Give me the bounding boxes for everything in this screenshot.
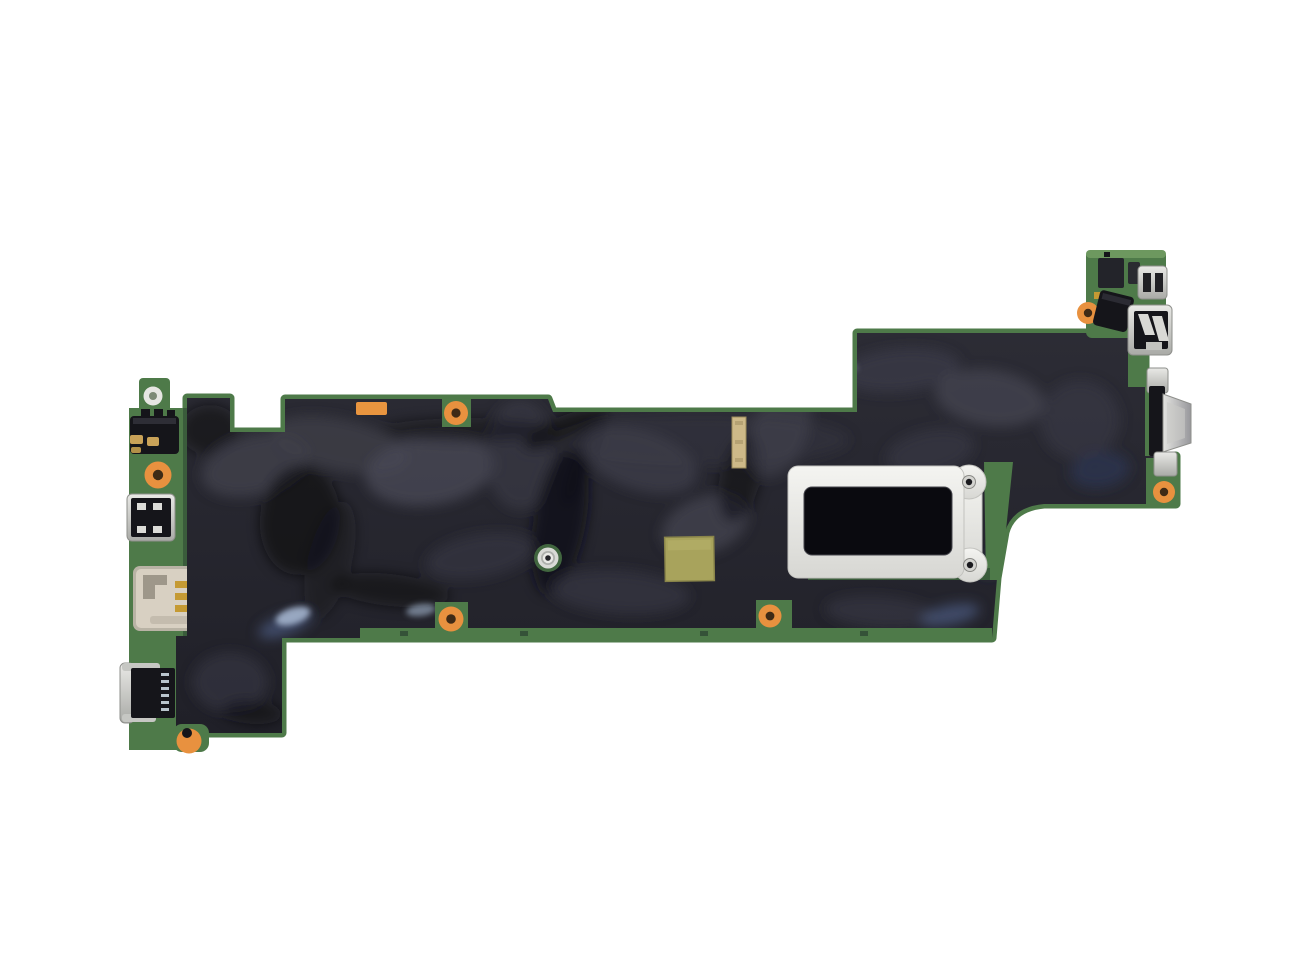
motherboard-photo xyxy=(0,0,1297,960)
dock-connector xyxy=(120,663,175,723)
mount-hole-orange-bottom-2 xyxy=(759,605,782,628)
gold-strip xyxy=(732,417,746,468)
smd-components xyxy=(141,409,175,416)
mount-hole-orange-right xyxy=(1153,481,1175,503)
thermal-pad xyxy=(665,537,715,582)
orange-sticker xyxy=(356,402,387,415)
mount-hole-orange-bottom-1 xyxy=(439,607,464,632)
usb-port-left xyxy=(127,494,175,541)
bracket-screw-bottom xyxy=(964,559,977,572)
cpu-bracket xyxy=(788,465,987,582)
bracket-screw-top xyxy=(963,476,976,489)
audio-jack xyxy=(130,416,179,454)
mount-hole-orange-left xyxy=(145,462,172,489)
mount-hole-silver xyxy=(144,387,163,406)
mini-connector xyxy=(1138,266,1167,299)
mount-hole-orange-top xyxy=(444,401,468,425)
metal-standoff xyxy=(534,544,562,572)
vga-connector xyxy=(1149,386,1191,456)
bracket-tab-lower xyxy=(1154,452,1177,476)
board-graphic xyxy=(0,0,1297,960)
usb-port-right xyxy=(1128,305,1172,355)
